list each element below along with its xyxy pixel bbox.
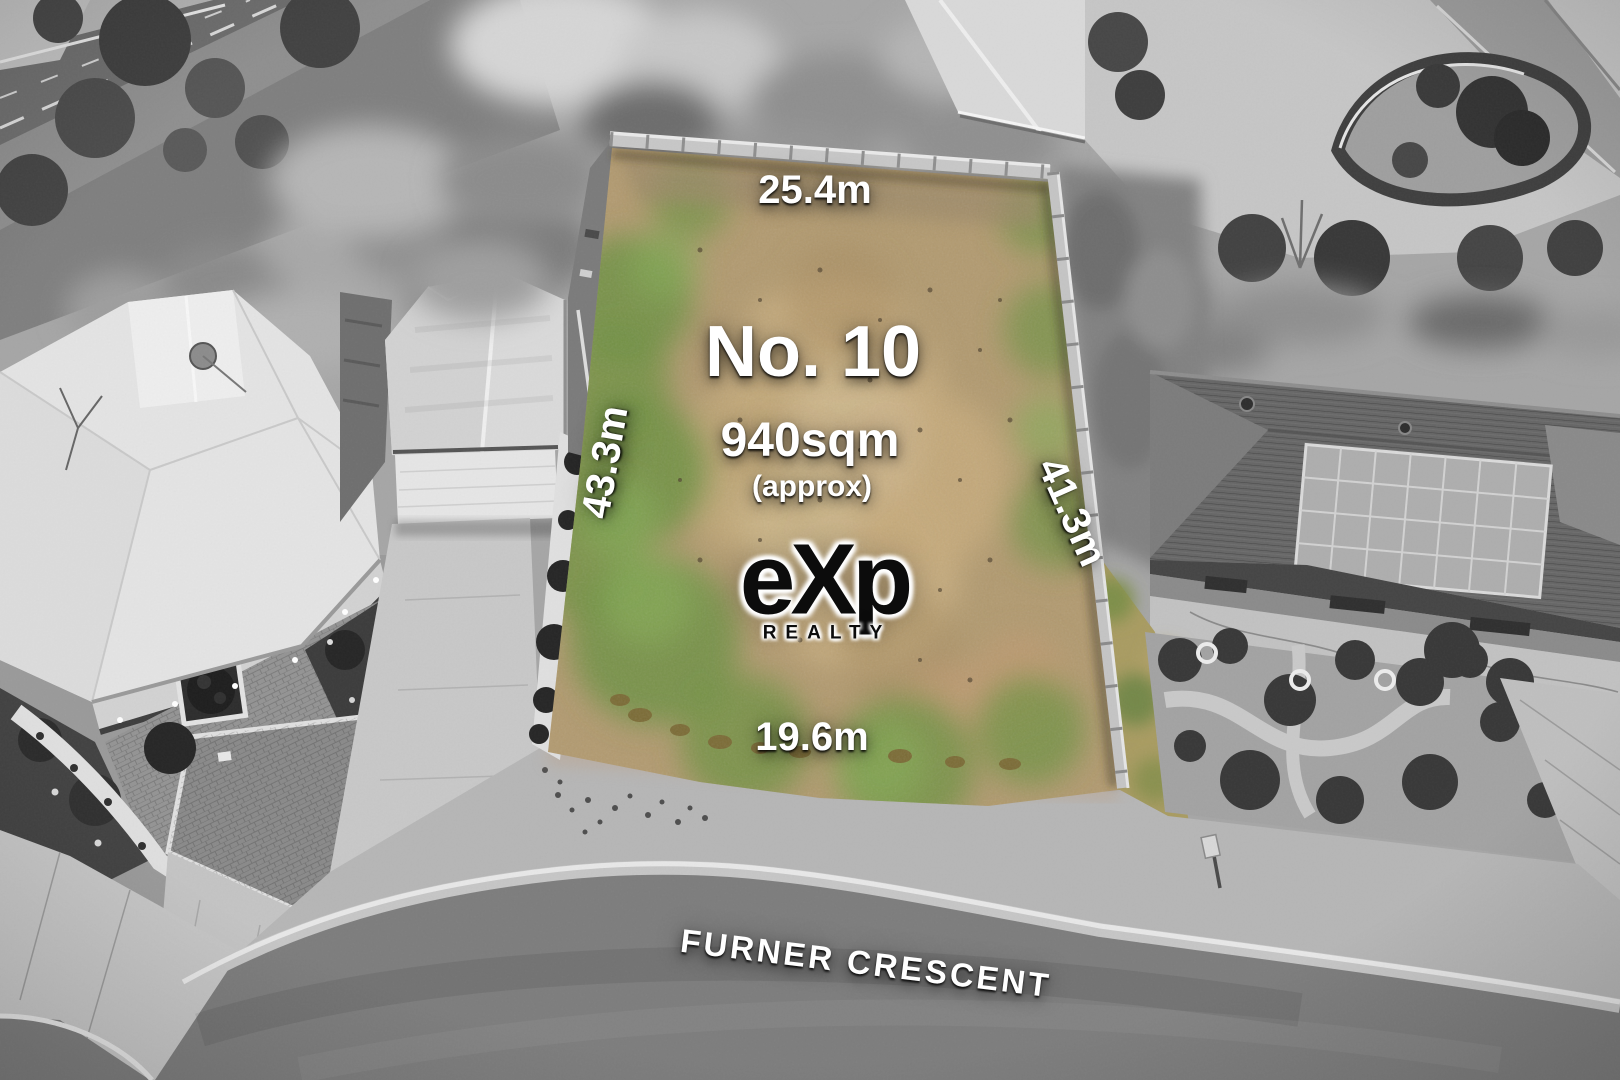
front-boundary-dimension-label: 19.6m (755, 717, 868, 757)
real-estate-aerial-photo: 25.4m No. 10 940sqm (approx) 43.3m 41.3m… (0, 0, 1620, 1080)
annotation-overlay: 25.4m No. 10 940sqm (approx) 43.3m 41.3m… (0, 0, 1620, 1080)
street-name-label: FURNER CRESCENT (679, 924, 1053, 1002)
exp-logo-wordmark: eXp (740, 540, 908, 620)
area-approx-label: (approx) (752, 472, 872, 502)
right-boundary-dimension-label: 41.3m (1031, 452, 1114, 572)
lot-area-label: 940sqm (721, 417, 900, 465)
lot-number-label: No. 10 (705, 316, 921, 388)
exp-realty-logo: eXp REALTY (740, 540, 908, 645)
exp-logo-tagline: REALTY (746, 623, 908, 645)
left-boundary-dimension-label: 43.3m (575, 403, 634, 522)
rear-boundary-dimension-label: 25.4m (758, 170, 871, 210)
